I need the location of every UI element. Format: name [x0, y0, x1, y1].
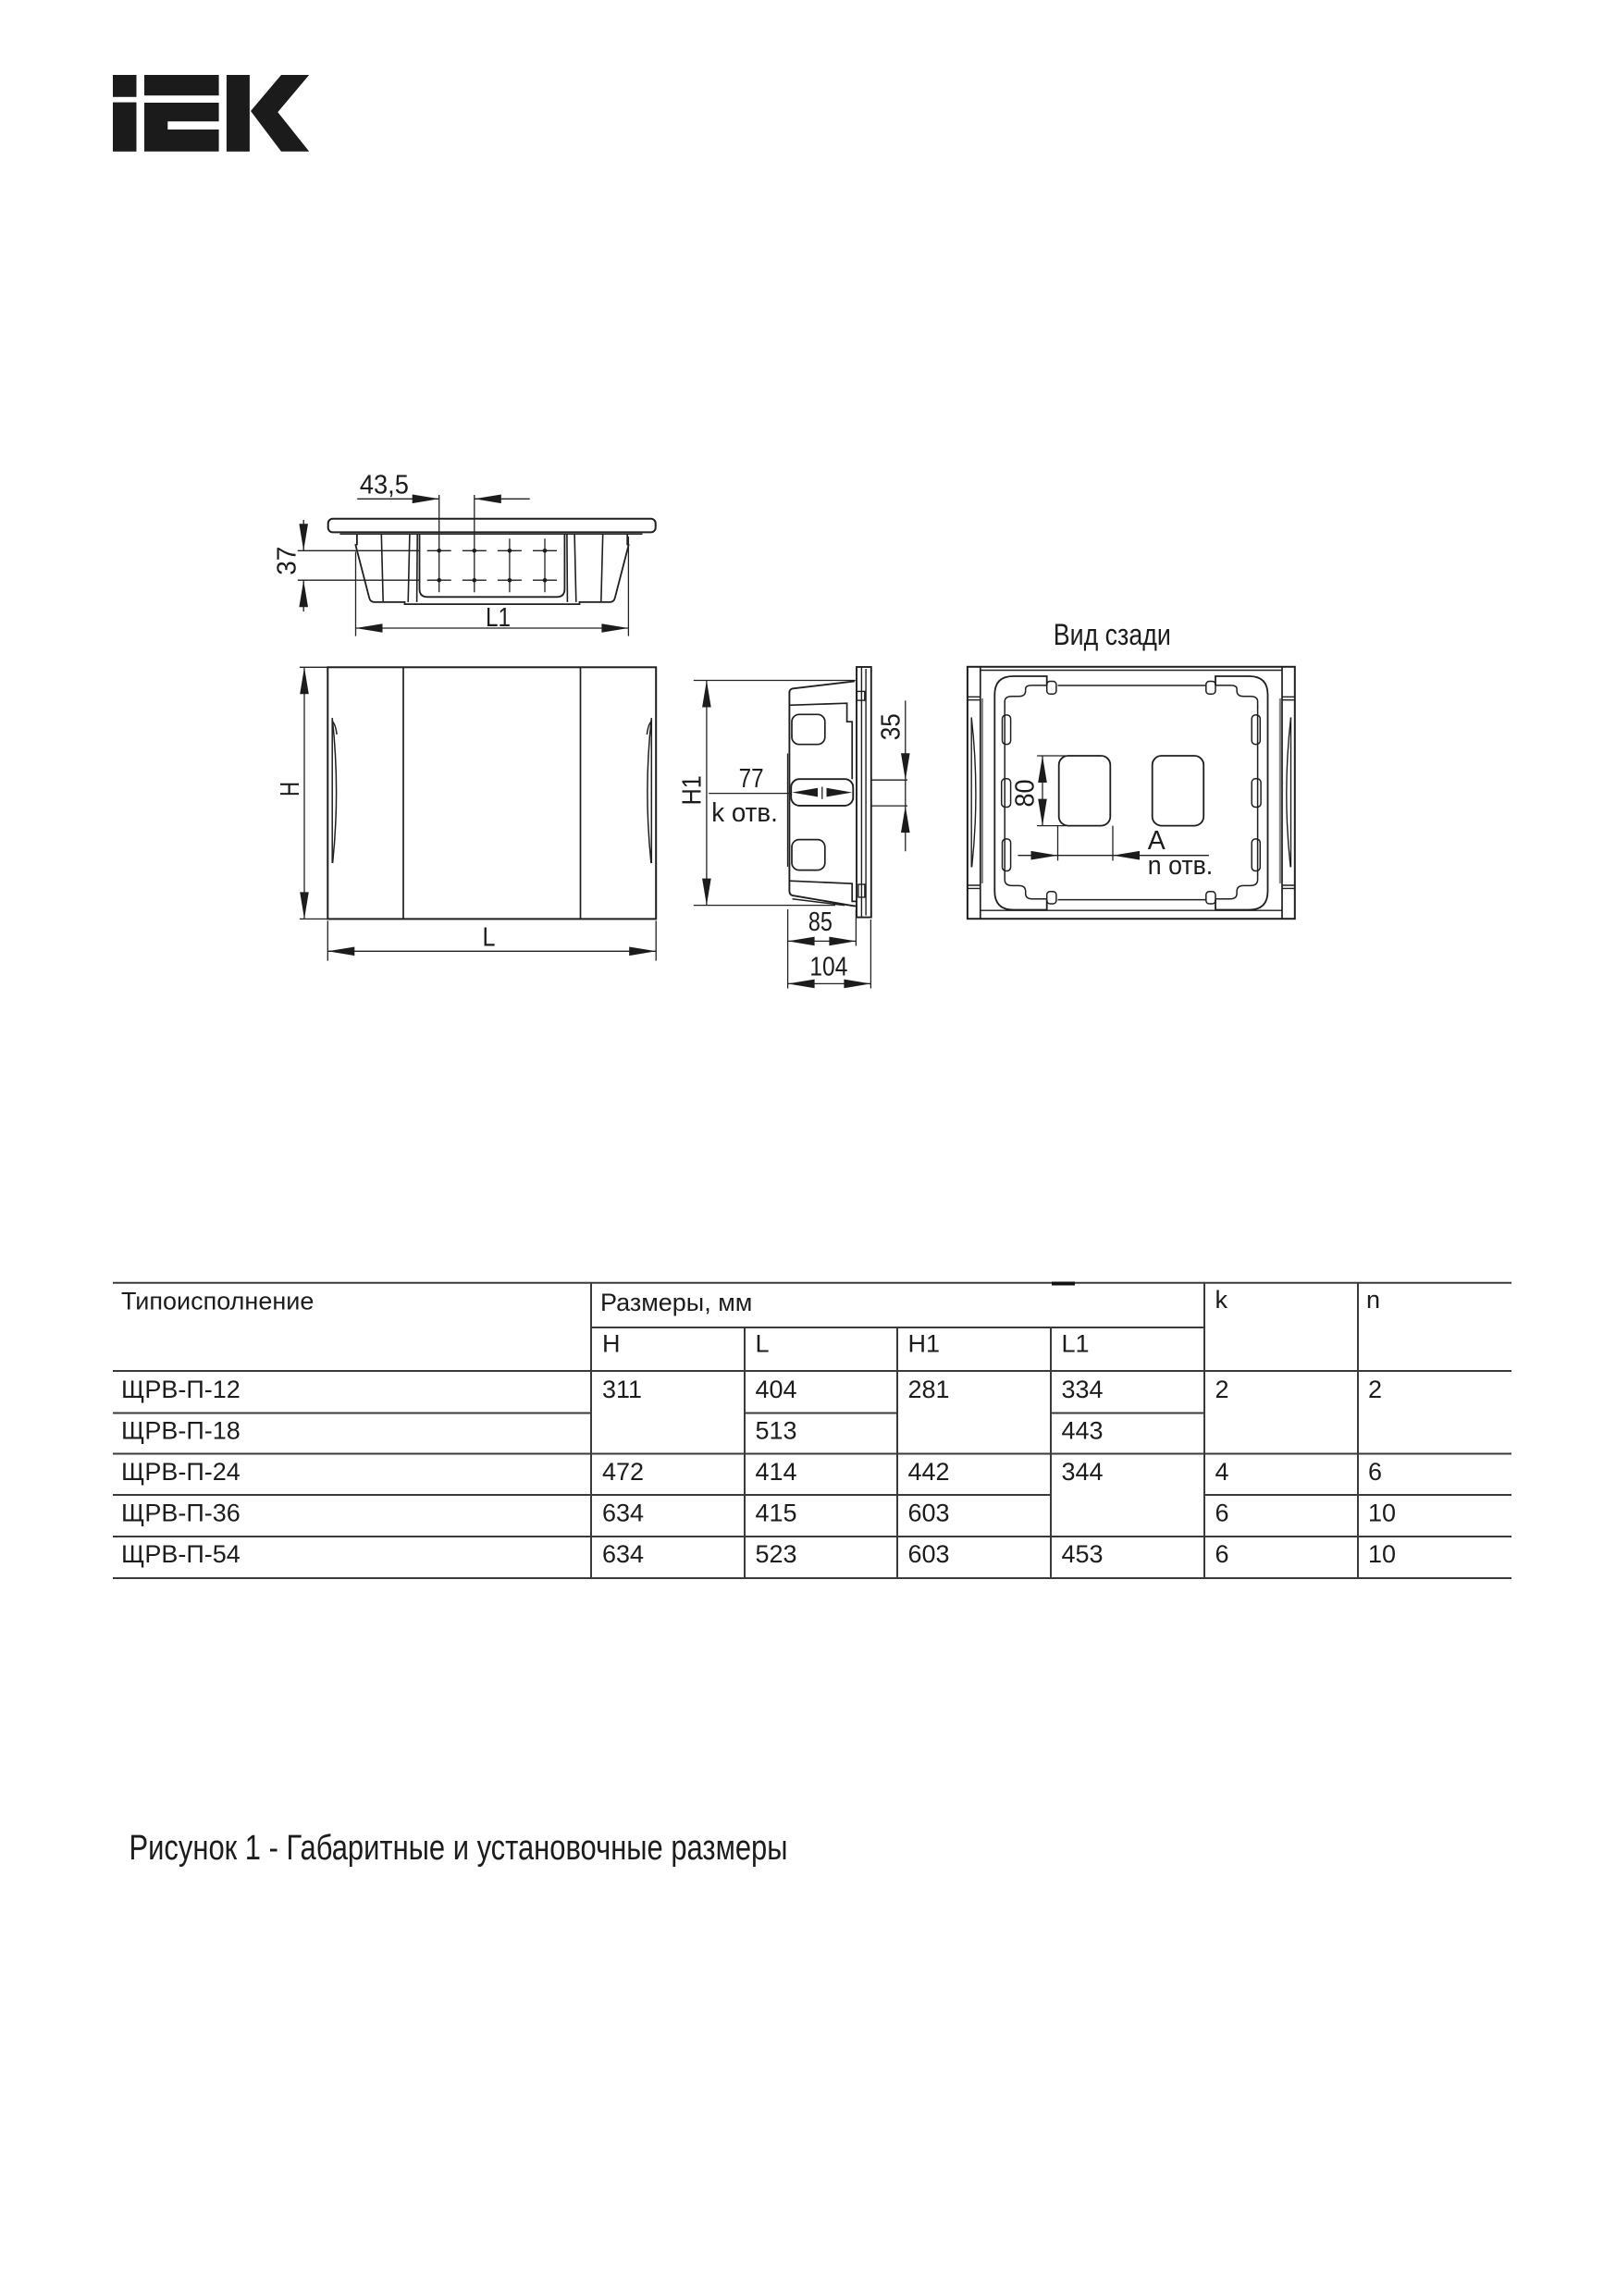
svg-text:4: 4 [1215, 1458, 1229, 1486]
svg-text:Размеры, мм: Размеры, мм [600, 1289, 752, 1316]
svg-text:2: 2 [1215, 1376, 1229, 1403]
svg-text:35: 35 [876, 713, 906, 740]
svg-text:311: 311 [602, 1376, 642, 1403]
svg-text:H1: H1 [677, 775, 707, 805]
svg-text:Рисунок 1 - Габаритные и устан: Рисунок 1 - Габаритные и установочные ра… [130, 1829, 788, 1868]
svg-text:2: 2 [1368, 1376, 1382, 1403]
svg-text:513: 513 [756, 1416, 797, 1444]
svg-text:10: 10 [1368, 1500, 1396, 1527]
svg-text:ЩРВ-П-36: ЩРВ-П-36 [121, 1500, 241, 1527]
svg-text:k отв.: k отв. [711, 798, 778, 828]
svg-text:L: L [483, 923, 496, 953]
svg-text:80: 80 [1011, 780, 1041, 808]
svg-text:523: 523 [756, 1540, 797, 1568]
svg-text:37: 37 [273, 547, 302, 575]
svg-text:L1: L1 [486, 603, 511, 633]
svg-text:77: 77 [739, 764, 764, 794]
svg-text:n отв.: n отв. [1148, 851, 1213, 881]
svg-text:ЩРВ-П-54: ЩРВ-П-54 [121, 1540, 241, 1568]
svg-text:H: H [276, 782, 305, 796]
svg-text:603: 603 [908, 1540, 950, 1568]
svg-text:281: 281 [908, 1376, 950, 1403]
svg-text:L: L [756, 1330, 770, 1358]
svg-text:Вид сзади: Вид сзади [1054, 618, 1171, 651]
svg-text:453: 453 [1062, 1540, 1104, 1568]
svg-text:6: 6 [1368, 1458, 1382, 1486]
svg-text:442: 442 [908, 1458, 950, 1486]
svg-text:n: n [1366, 1286, 1380, 1314]
svg-text:603: 603 [908, 1500, 950, 1527]
svg-text:414: 414 [756, 1458, 797, 1486]
svg-text:ЩРВ-П-24: ЩРВ-П-24 [121, 1458, 241, 1486]
svg-text:6: 6 [1215, 1540, 1229, 1568]
svg-text:ЩРВ-П-18: ЩРВ-П-18 [121, 1416, 241, 1444]
svg-text:443: 443 [1062, 1416, 1104, 1444]
svg-text:10: 10 [1368, 1540, 1396, 1568]
svg-text:472: 472 [602, 1458, 644, 1486]
svg-text:334: 334 [1062, 1376, 1104, 1403]
svg-text:634: 634 [602, 1540, 644, 1568]
svg-text:k: k [1215, 1286, 1228, 1314]
svg-text:104: 104 [809, 952, 847, 981]
svg-text:404: 404 [756, 1376, 797, 1403]
svg-text:415: 415 [756, 1500, 797, 1527]
svg-text:ЩРВ-П-12: ЩРВ-П-12 [121, 1376, 241, 1403]
svg-text:L1: L1 [1062, 1330, 1090, 1358]
svg-text:Типоисполнение: Типоисполнение [121, 1288, 314, 1315]
svg-text:85: 85 [808, 907, 833, 937]
svg-text:H: H [602, 1330, 621, 1358]
svg-text:344: 344 [1062, 1458, 1104, 1486]
svg-text:6: 6 [1215, 1500, 1229, 1527]
svg-text:634: 634 [602, 1500, 644, 1527]
svg-text:H1: H1 [908, 1330, 941, 1358]
svg-text:43,5: 43,5 [360, 471, 409, 500]
